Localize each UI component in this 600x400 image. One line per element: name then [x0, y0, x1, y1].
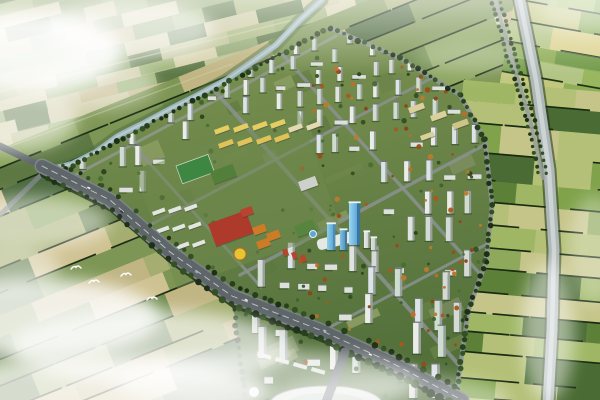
glass-tower — [364, 232, 368, 248]
mist-cloud — [522, 262, 574, 400]
aerial-city-render — [0, 0, 600, 400]
glass-tower — [349, 203, 357, 245]
aerial-render-canvas — [0, 0, 600, 400]
glass-tower — [327, 224, 333, 250]
glass-tower — [371, 238, 375, 250]
horizon-fog — [0, 0, 600, 75]
glass-tower — [340, 230, 345, 250]
round-plaza — [234, 248, 246, 260]
round-plaza — [310, 231, 317, 238]
